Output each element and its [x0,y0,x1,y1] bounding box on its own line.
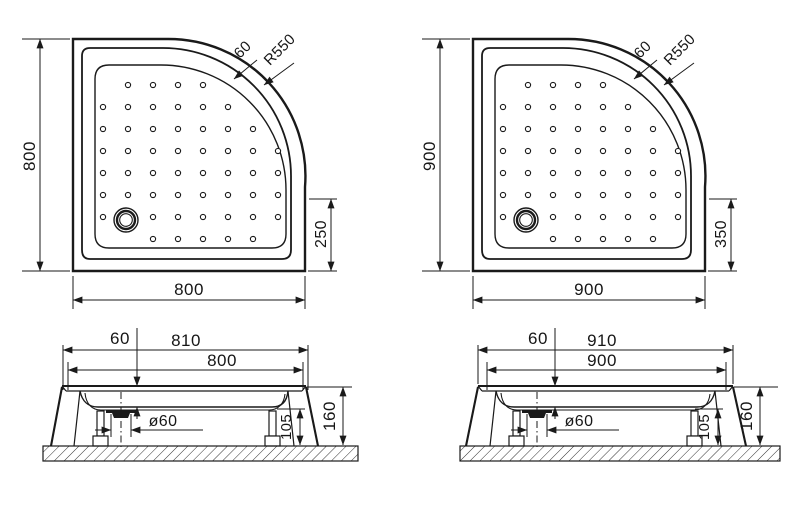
leg-left [97,411,104,436]
skirt-left-outer [51,387,62,446]
dim-900-side: 900 [420,39,470,271]
dim-drain-diameter: ø60 [95,413,203,437]
ground-hatch [43,446,358,461]
dim-800-bottom: 800 [73,276,305,309]
leg-right [269,411,276,436]
skirt-left-inner [490,391,496,446]
dim-label-leg-height: 105 [278,414,295,440]
dim-label-drain-diameter: ø60 [565,413,594,430]
dim-depth-60: 60 [110,328,137,419]
dim-label-overall-width: 910 [587,331,617,350]
skirt-left-inner [74,391,80,446]
dim-label-bottom: 800 [174,280,204,299]
dim-drain-diameter: ø60 [511,413,619,437]
dim-350-drain-offset: 350 [708,199,737,271]
dim-label-total-height: 160 [737,401,756,431]
skirt-right-outer [306,387,318,446]
dim-label-rim-width: 60 [231,38,255,62]
dim-800-tray: 800 [68,351,303,390]
leg-left [513,411,520,436]
plan-view-900: 900 900 350 60 R550 [420,31,737,309]
dim-900-tray: 900 [487,351,726,390]
dim-label-depth: 60 [110,329,130,348]
section-view-800: 60 810 800 ø60 105 160 [43,328,358,461]
leg-left-foot [93,436,108,446]
ground-hatch [460,446,780,461]
dim-label-drain-diameter: ø60 [149,413,178,430]
plan-view-800: 800 800 250 60 R550 [20,31,337,309]
dim-depth-60: 60 [528,328,555,419]
leader-rim-width: 60 [631,38,657,79]
basin-surface [80,391,288,407]
dim-label-depth: 60 [528,329,548,348]
dim-label-tray-width: 900 [587,351,617,370]
basin-surface [496,391,715,407]
dim-810-overall: 810 [63,331,308,390]
dim-label-rim-width: 60 [631,38,655,62]
leader-corner-radius: R550 [661,31,699,85]
dim-250-drain-offset: 250 [308,199,337,271]
skirt-left-outer [466,387,478,446]
dim-160-total-height: 160 [734,387,778,445]
leg-left-foot [509,436,524,446]
dim-label-drain-offset: 350 [713,220,730,248]
shower-tray-technical-drawing: 800 800 250 60 R550 900 [0,0,800,506]
dim-label-side: 800 [20,141,39,171]
dim-800-side: 800 [20,39,70,271]
dim-160-total-height: 160 [307,387,352,445]
dim-label-side: 900 [420,141,439,171]
leader-rim-width: 60 [231,38,257,79]
dim-label-overall-width: 810 [171,331,201,350]
dim-label-tray-width: 800 [207,351,237,370]
dim-label-total-height: 160 [320,401,339,431]
dim-105-leg-height: 105 [277,409,305,445]
dim-900-bottom: 900 [473,276,705,309]
section-view-900: 60 910 900 ø60 105 160 [460,328,780,461]
leader-corner-radius: R550 [261,31,299,85]
dim-label-bottom: 900 [574,280,604,299]
dim-label-leg-height: 105 [696,414,713,440]
drawing-svg: 800 800 250 60 R550 900 [0,0,800,506]
dim-label-drain-offset: 250 [313,220,330,248]
